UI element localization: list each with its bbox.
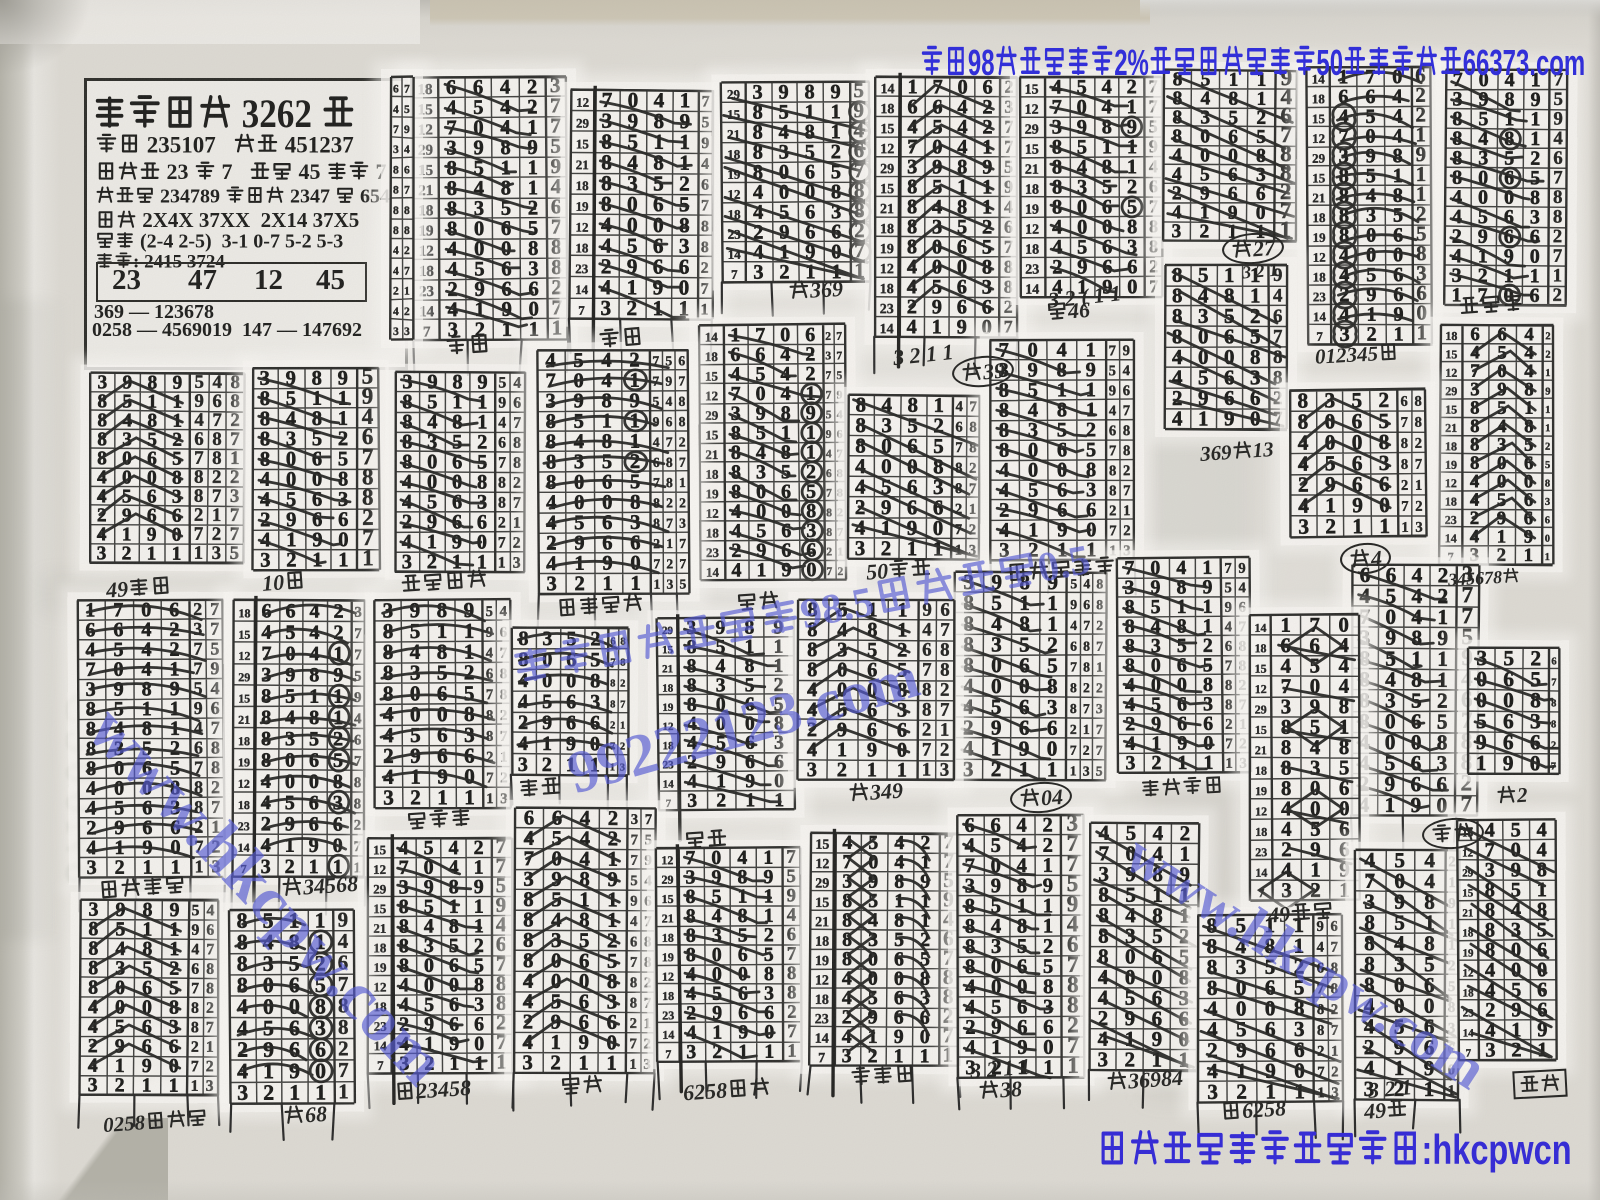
svg-text:3989: 3989 [1453,88,1541,110]
svg-text:6: 6 [701,177,709,194]
svg-text:42: 42 [393,305,410,318]
svg-text:8: 8 [1273,347,1282,368]
svg-text:18: 18 [662,931,674,945]
svg-text:18: 18 [880,222,894,237]
svg-text:29: 29 [1445,384,1457,398]
svg-text:87: 87 [498,495,521,512]
svg-text:190: 190 [1476,751,1541,775]
svg-text:12: 12 [1313,250,1326,265]
svg-text:6: 6 [787,924,797,945]
svg-text:7: 7 [578,303,585,318]
svg-text:12: 12 [880,142,894,157]
svg-text:12: 12 [575,220,588,235]
svg-text:23: 23 [1255,845,1267,859]
svg-text:47: 47 [393,264,410,277]
svg-text:15: 15 [1462,888,1474,900]
svg-text:72: 72 [191,1058,214,1075]
svg-text:4563: 4563 [546,512,640,534]
svg-text:7: 7 [1553,167,1563,188]
svg-text:82: 82 [191,1000,214,1017]
svg-text:8: 8 [1553,207,1563,228]
svg-text:23: 23 [706,545,720,560]
svg-text:15: 15 [373,842,387,857]
svg-text:14: 14 [662,1028,674,1042]
svg-text:4190: 4190 [260,529,348,551]
svg-text:848: 848 [1485,899,1547,921]
svg-text:12: 12 [1025,103,1039,118]
svg-text:18: 18 [1025,183,1039,198]
svg-text:6: 6 [354,732,361,748]
svg-text:0: 0 [1545,534,1550,545]
svg-text:8352: 8352 [260,428,348,450]
svg-text:18: 18 [238,606,250,620]
svg-text:88: 88 [393,224,410,237]
svg-text:18: 18 [662,989,674,1003]
svg-text:96: 96 [191,922,214,939]
svg-text:1: 1 [1545,368,1550,379]
svg-text:8: 8 [787,982,797,1003]
svg-text:2: 2 [787,1002,797,1023]
svg-text:1: 1 [1545,552,1550,563]
svg-text:14: 14 [705,329,719,344]
svg-text:12: 12 [1445,476,1457,490]
svg-text:7041: 7041 [85,658,179,680]
svg-text:12: 12 [576,95,589,110]
svg-text:18: 18 [705,349,719,364]
svg-text:15: 15 [1445,403,1457,417]
svg-text:13: 13 [191,1078,214,1095]
svg-text:15: 15 [662,892,674,906]
svg-text:18: 18 [1255,764,1267,778]
svg-text:42: 42 [393,244,410,257]
svg-text:18: 18 [1255,825,1267,839]
svg-text:29: 29 [705,408,719,423]
svg-text:6: 6 [1553,148,1563,169]
svg-text:14: 14 [880,82,894,97]
svg-text:8352: 8352 [753,141,841,163]
svg-text:968: 968 [653,414,686,429]
svg-text:7: 7 [354,754,361,770]
svg-text:21: 21 [880,202,894,217]
svg-text:18: 18 [705,467,719,482]
svg-text:217: 217 [653,536,686,551]
svg-text:968: 968 [1070,597,1103,612]
svg-text:19: 19 [662,950,674,964]
svg-text:33: 33 [393,325,410,338]
svg-text:14: 14 [1255,866,1267,880]
svg-text:7: 7 [731,267,738,282]
svg-text:2: 2 [338,1036,349,1060]
svg-text:217: 217 [1070,722,1103,737]
svg-text:19: 19 [238,755,250,769]
svg-text:1706: 1706 [730,324,815,346]
svg-text:14: 14 [1254,621,1266,635]
svg-text:835: 835 [1485,919,1547,941]
svg-text:5: 5 [354,669,361,685]
svg-text:15: 15 [1255,662,1267,676]
svg-text:15: 15 [238,691,250,705]
svg-text:135: 135 [1070,763,1103,778]
svg-text:18: 18 [1025,243,1039,258]
svg-text:18: 18 [575,240,589,255]
svg-text:18: 18 [880,102,894,117]
svg-text:19: 19 [1255,784,1267,798]
svg-text:9: 9 [787,885,797,906]
svg-text:12: 12 [815,857,829,872]
svg-text:8: 8 [1551,719,1556,730]
svg-text:21: 21 [576,157,589,172]
svg-text:727: 727 [1070,743,1103,758]
svg-text:19: 19 [880,242,894,257]
svg-text:21: 21 [1255,743,1267,757]
svg-text:6: 6 [1545,515,1550,526]
svg-text:7: 7 [787,944,797,965]
svg-text:23: 23 [1445,513,1457,527]
svg-text:8481: 8481 [1452,128,1540,150]
svg-text:454: 454 [1485,819,1547,841]
svg-text:15: 15 [1445,347,1457,361]
svg-text:7: 7 [1316,329,1323,344]
svg-text:7: 7 [1551,677,1556,688]
svg-text:8: 8 [1553,187,1563,208]
svg-text:7: 7 [818,1051,825,1066]
svg-text:472: 472 [653,434,686,449]
svg-text:19: 19 [1025,203,1039,218]
svg-text:14: 14 [1025,283,1039,298]
svg-text:21: 21 [393,285,410,298]
svg-text:19: 19 [1313,230,1327,245]
svg-text:135: 135 [653,577,686,592]
svg-text:19: 19 [1462,948,1474,960]
svg-text:781: 781 [1070,659,1103,674]
svg-text:19: 19 [815,954,829,969]
svg-text:15: 15 [1312,170,1326,185]
svg-text:7041: 7041 [1124,557,1212,579]
svg-text:8: 8 [701,239,709,256]
svg-text:873: 873 [1070,701,1103,716]
svg-text:87: 87 [393,184,410,197]
svg-text:19: 19 [576,199,590,214]
svg-text:12: 12 [706,506,719,521]
svg-text:29: 29 [373,881,387,896]
svg-text:29: 29 [1255,702,1267,716]
svg-text:29: 29 [1312,151,1326,166]
svg-text:1: 1 [338,1079,349,1103]
svg-text:12: 12 [1025,223,1039,238]
svg-text:15: 15 [1255,723,1267,737]
svg-text:23: 23 [1025,263,1039,278]
svg-text:12: 12 [1312,131,1325,146]
svg-text:15: 15 [1312,111,1326,126]
svg-text:3: 3 [1545,497,1550,508]
svg-text:21: 21 [373,921,386,936]
svg-text:8481: 8481 [963,611,1058,635]
svg-text:18: 18 [815,935,829,950]
svg-text:12: 12 [1445,366,1457,380]
svg-text:21: 21 [1445,421,1457,435]
svg-text:18: 18 [1445,495,1457,509]
svg-text:29: 29 [238,670,250,684]
svg-text:5: 5 [1545,460,1550,471]
svg-text:9: 9 [1545,386,1550,397]
svg-text:72: 72 [498,535,521,552]
svg-text:781: 781 [653,475,686,490]
svg-text:21: 21 [498,515,521,532]
svg-text:822: 822 [653,495,686,510]
svg-text:4: 4 [701,156,709,173]
svg-text:14: 14 [880,322,894,337]
svg-text:15: 15 [815,896,829,911]
svg-text:18: 18 [706,525,720,540]
svg-text:23: 23 [575,261,589,276]
svg-text:21: 21 [1312,190,1325,205]
svg-text:2966: 2966 [402,511,487,533]
svg-text:68: 68 [955,420,976,436]
svg-text:4008: 4008 [963,674,1058,698]
svg-text:7: 7 [338,1058,349,1082]
svg-text:23: 23 [1313,289,1327,304]
svg-text:18: 18 [1255,641,1267,655]
svg-text:29: 29 [576,116,590,131]
svg-text:12: 12 [880,262,894,277]
svg-text:7: 7 [786,847,796,868]
svg-text:7: 7 [666,798,672,810]
svg-text:8: 8 [354,796,361,812]
svg-text:21: 21 [1025,163,1039,178]
svg-text:687: 687 [1070,639,1103,654]
svg-text:797: 797 [652,374,685,389]
svg-text:2: 2 [1553,226,1563,247]
svg-text:15: 15 [238,628,250,642]
svg-text:18: 18 [576,178,590,193]
svg-text:12: 12 [815,973,829,988]
svg-text:15: 15 [705,369,719,384]
svg-text:88: 88 [393,204,410,217]
svg-text:21: 21 [815,915,829,930]
svg-text:21: 21 [1462,908,1473,920]
svg-text:12: 12 [705,388,718,403]
svg-text:9: 9 [354,690,361,706]
svg-text:2: 2 [1545,442,1550,453]
svg-text:23: 23 [662,1008,674,1022]
svg-text:18: 18 [1312,210,1326,225]
svg-text:12: 12 [662,970,674,984]
svg-text:12: 12 [238,649,250,663]
svg-text:78: 78 [191,980,214,997]
svg-text:15: 15 [1025,83,1039,98]
svg-text:5: 5 [701,114,709,131]
svg-text:2: 2 [1552,285,1562,306]
svg-text:18: 18 [1445,329,1457,343]
svg-text:4190: 4190 [1172,202,1266,224]
svg-text:2: 2 [701,260,709,277]
svg-text:12: 12 [661,853,673,867]
svg-text:7: 7 [665,1047,671,1061]
svg-text:54: 54 [192,902,215,919]
svg-text:8352: 8352 [965,936,1053,958]
svg-text:2: 2 [1551,740,1556,751]
svg-text:5: 5 [1554,89,1564,110]
svg-text:29: 29 [815,876,829,891]
svg-text:29: 29 [661,873,673,887]
svg-text:1: 1 [1067,1052,1079,1078]
svg-text:18: 18 [1313,269,1327,284]
svg-text:14: 14 [1313,309,1327,324]
svg-text:7: 7 [787,1021,797,1042]
svg-text:12: 12 [373,862,386,877]
svg-text:8352: 8352 [1452,147,1540,169]
svg-text:15: 15 [815,838,829,853]
svg-text:7: 7 [702,93,710,110]
svg-text:822: 822 [1070,680,1103,695]
svg-text:1: 1 [1545,423,1550,434]
svg-text:29: 29 [880,162,894,177]
svg-text:18: 18 [880,282,894,297]
svg-text:14: 14 [706,565,720,580]
svg-text:19: 19 [1445,458,1457,472]
svg-text:12: 12 [238,777,250,791]
svg-text:8: 8 [701,218,709,235]
svg-text:15: 15 [1025,143,1039,158]
svg-text:15: 15 [880,182,894,197]
svg-text:9: 9 [701,135,709,152]
svg-text:4008: 4008 [546,492,640,514]
svg-text:18: 18 [662,683,674,695]
svg-text:7: 7 [423,324,431,340]
svg-text:47: 47 [955,399,976,415]
svg-text:8065: 8065 [963,653,1058,677]
svg-text:7: 7 [701,197,709,214]
svg-text:19: 19 [706,486,720,501]
svg-text:4: 4 [1553,128,1563,149]
svg-text:4: 4 [787,905,797,926]
svg-text:8: 8 [1545,478,1550,489]
svg-text:18: 18 [238,734,250,748]
svg-text:15: 15 [373,901,387,916]
svg-text:86: 86 [393,163,410,176]
svg-text:727: 727 [653,556,686,571]
svg-text:15: 15 [880,122,894,137]
svg-text:14: 14 [575,282,589,297]
svg-text:21: 21 [191,1039,214,1056]
svg-text:1: 1 [362,544,374,570]
svg-text:2: 2 [1545,350,1550,361]
svg-text:18: 18 [1312,91,1326,106]
svg-text:72: 72 [826,565,843,578]
svg-text:14: 14 [815,1032,829,1047]
svg-text:1: 1 [787,1041,797,1062]
svg-text:7: 7 [354,647,361,663]
svg-text:6642: 6642 [964,814,1052,836]
svg-text:12: 12 [1255,682,1267,696]
svg-text:13: 13 [498,555,521,572]
svg-text:23: 23 [815,1012,829,1027]
svg-text:135: 135 [194,543,240,564]
svg-text:47: 47 [191,941,214,958]
svg-text:21: 21 [238,713,250,727]
svg-text:18: 18 [1445,439,1457,453]
svg-text:1: 1 [701,301,709,318]
svg-text:18: 18 [815,993,829,1008]
svg-text:6: 6 [1551,656,1556,667]
svg-text:1: 1 [1545,405,1550,416]
svg-text:472: 472 [1070,618,1103,633]
svg-text:14: 14 [1445,531,1457,545]
svg-text:15: 15 [576,136,590,151]
svg-text:9: 9 [1553,109,1563,130]
svg-text:29: 29 [1025,123,1039,138]
svg-text:5: 5 [786,866,796,887]
svg-text:4: 4 [1273,285,1283,306]
svg-text:15: 15 [705,427,719,442]
svg-text:400: 400 [1485,959,1547,981]
svg-text:2: 2 [1545,331,1550,342]
svg-text:87: 87 [191,1019,214,1036]
svg-text:7: 7 [701,281,709,298]
svg-text:8: 8 [787,963,797,984]
svg-text:21: 21 [705,447,718,462]
svg-text:23: 23 [880,302,894,317]
svg-text:7: 7 [1553,246,1563,267]
svg-text:1: 1 [1417,320,1428,344]
svg-text:12: 12 [1255,804,1267,818]
svg-text:7: 7 [354,626,361,642]
svg-text:3989: 3989 [260,367,348,389]
svg-text:1: 1 [1553,265,1563,286]
svg-text:21: 21 [662,911,674,925]
svg-text:8: 8 [354,775,361,791]
svg-text:68: 68 [191,961,214,978]
svg-text:68: 68 [1400,394,1421,410]
